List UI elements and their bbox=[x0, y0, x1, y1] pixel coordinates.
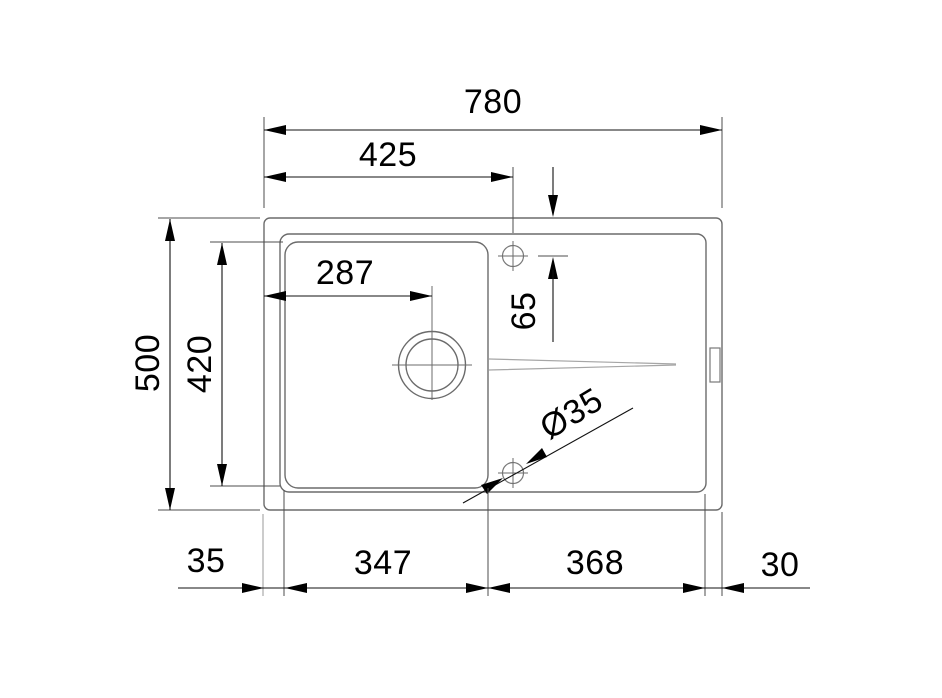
dim-arrow-left bbox=[264, 291, 286, 301]
dim-faucet-x-label: 425 bbox=[359, 136, 417, 174]
dim-arrow bbox=[285, 583, 307, 593]
dim-bowl-depth-label: 420 bbox=[181, 335, 219, 393]
dim-drain-x-label: 287 bbox=[316, 254, 374, 292]
drain-hole bbox=[392, 286, 472, 400]
dim-arrow bbox=[683, 583, 705, 593]
dim-arrow-up bbox=[165, 219, 175, 241]
dim-arrow-right bbox=[700, 125, 722, 135]
dim-drainboard-width-label: 368 bbox=[566, 544, 624, 582]
drainboard-groove bbox=[489, 359, 676, 370]
dim-arrow bbox=[466, 583, 488, 593]
dim-arrow-right bbox=[491, 172, 513, 182]
dim-overall-width-label: 780 bbox=[464, 83, 522, 121]
dim-arrow bbox=[242, 583, 264, 593]
dimension-bottom-row: 35 347 368 30 bbox=[178, 488, 810, 596]
dim-arrow bbox=[722, 583, 744, 593]
dim-arrow-right bbox=[410, 291, 432, 301]
dim-arrow-down bbox=[217, 464, 227, 486]
dim-arrow-up bbox=[217, 243, 227, 265]
dim-left-rim-label: 35 bbox=[187, 542, 226, 580]
dim-right-rim-label: 30 bbox=[761, 546, 800, 584]
dim-faucet-y-label: 65 bbox=[505, 292, 543, 331]
dim-arrow-down bbox=[165, 488, 175, 510]
faucet-hole-top bbox=[498, 241, 528, 271]
drawing-canvas: 780 425 500 420 287 65 bbox=[0, 0, 942, 693]
dimension-faucet-y: 65 bbox=[505, 167, 568, 342]
overflow-slot bbox=[710, 348, 720, 382]
dimension-drain-x: 287 bbox=[264, 254, 432, 301]
dimension-bowl-depth: 420 bbox=[181, 242, 283, 486]
dim-overall-depth-label: 500 bbox=[129, 334, 167, 392]
dim-arrow bbox=[488, 583, 510, 593]
dim-hole-diameter-label: Ø35 bbox=[534, 381, 610, 447]
dim-arrow-left bbox=[264, 172, 286, 182]
dim-arrow-down bbox=[548, 195, 558, 217]
dimension-overall-width: 780 bbox=[264, 83, 722, 208]
accessory-hole-bottom bbox=[498, 458, 528, 488]
sink-technical-drawing: 780 425 500 420 287 65 bbox=[0, 0, 942, 693]
dim-bowl-width-label: 347 bbox=[354, 544, 412, 582]
dim-arrow-left bbox=[264, 125, 286, 135]
